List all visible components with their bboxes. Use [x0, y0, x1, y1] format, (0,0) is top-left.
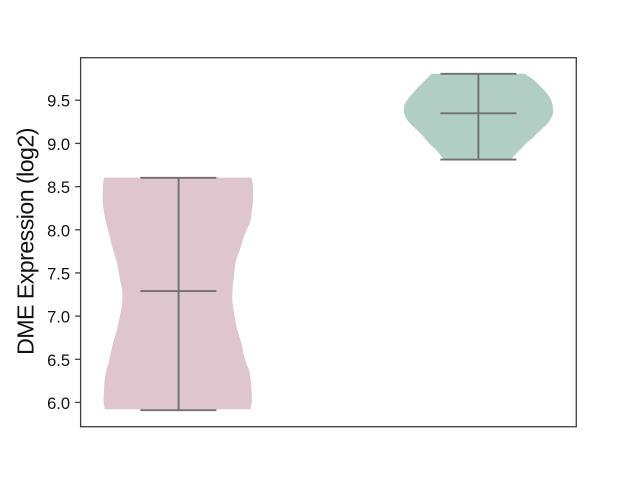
svg-text:9.0: 9.0	[47, 136, 70, 154]
svg-text:6.5: 6.5	[47, 352, 70, 370]
svg-text:8.5: 8.5	[47, 179, 70, 197]
svg-text:7.5: 7.5	[47, 265, 70, 283]
svg-text:9.5: 9.5	[47, 93, 70, 111]
svg-text:8.0: 8.0	[47, 222, 70, 240]
svg-text:6.0: 6.0	[47, 395, 70, 413]
svg-text:7.0: 7.0	[47, 309, 70, 327]
svg-text:DME Expression (log2): DME Expression (log2)	[13, 128, 39, 355]
